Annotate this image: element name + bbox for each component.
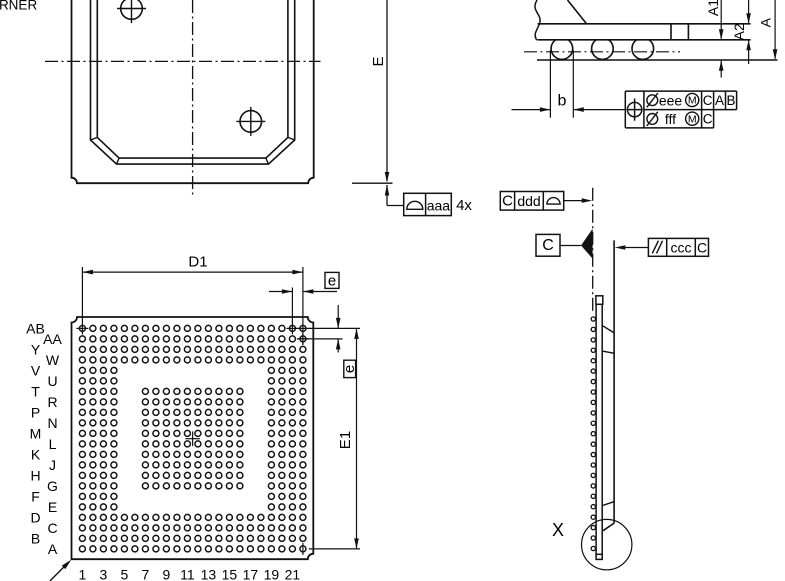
svg-text:C: C: [47, 520, 57, 536]
svg-text:C: C: [542, 237, 554, 254]
svg-text:5: 5: [121, 567, 129, 581]
svg-text:Y: Y: [31, 341, 41, 357]
svg-text:C: C: [703, 112, 713, 127]
svg-text:13: 13: [201, 567, 217, 581]
svg-text:A: A: [48, 541, 58, 557]
svg-text:17: 17: [243, 567, 259, 581]
svg-text:fff: fff: [665, 111, 676, 127]
svg-text:U: U: [47, 373, 57, 389]
svg-text:F: F: [31, 488, 40, 504]
svg-text:7: 7: [142, 567, 150, 581]
svg-text:RNER: RNER: [0, 0, 37, 13]
svg-text:A2: A2: [731, 23, 747, 40]
svg-text:21: 21: [285, 567, 301, 581]
svg-text:M: M: [30, 425, 42, 441]
svg-text:E1: E1: [337, 431, 354, 449]
svg-text:ccc: ccc: [671, 240, 692, 256]
svg-text:D: D: [30, 509, 40, 525]
svg-text:e: e: [328, 272, 336, 289]
svg-text:A1: A1: [705, 0, 721, 16]
svg-text:K: K: [31, 446, 41, 462]
svg-text:A: A: [715, 93, 724, 108]
svg-text:J: J: [49, 457, 56, 473]
svg-text:aaa: aaa: [427, 197, 451, 213]
svg-text:L: L: [49, 436, 57, 452]
svg-text:E: E: [48, 499, 57, 515]
svg-text:R: R: [47, 394, 57, 410]
svg-text:B: B: [31, 530, 40, 546]
svg-text:A: A: [757, 17, 773, 27]
svg-text:C: C: [502, 193, 513, 210]
svg-text:C: C: [703, 93, 713, 108]
svg-text:1: 1: [79, 567, 87, 581]
svg-text:3: 3: [100, 567, 108, 581]
svg-text:15: 15: [222, 567, 238, 581]
svg-text:P: P: [31, 404, 40, 420]
svg-text:e: e: [341, 365, 358, 373]
svg-text:9: 9: [163, 567, 171, 581]
svg-text:E: E: [370, 56, 387, 66]
svg-text:b: b: [558, 93, 567, 110]
svg-text:M: M: [688, 95, 697, 107]
svg-text:N: N: [47, 415, 57, 431]
svg-text:G: G: [47, 478, 58, 494]
svg-text:AB: AB: [26, 320, 45, 336]
svg-text:11: 11: [180, 567, 195, 581]
svg-text:AA: AA: [43, 331, 62, 347]
svg-text:C: C: [697, 240, 707, 256]
svg-text:B: B: [726, 93, 735, 108]
svg-text:W: W: [46, 352, 60, 368]
svg-text:X: X: [552, 520, 564, 540]
svg-text:M: M: [688, 113, 697, 125]
svg-text:H: H: [30, 467, 40, 483]
svg-text:eee: eee: [659, 93, 683, 109]
svg-text:D1: D1: [188, 253, 207, 270]
svg-text:ddd: ddd: [517, 193, 540, 209]
svg-text:4x: 4x: [456, 197, 472, 214]
svg-text:V: V: [31, 362, 41, 378]
svg-text:19: 19: [264, 567, 280, 581]
svg-text:T: T: [31, 383, 40, 399]
